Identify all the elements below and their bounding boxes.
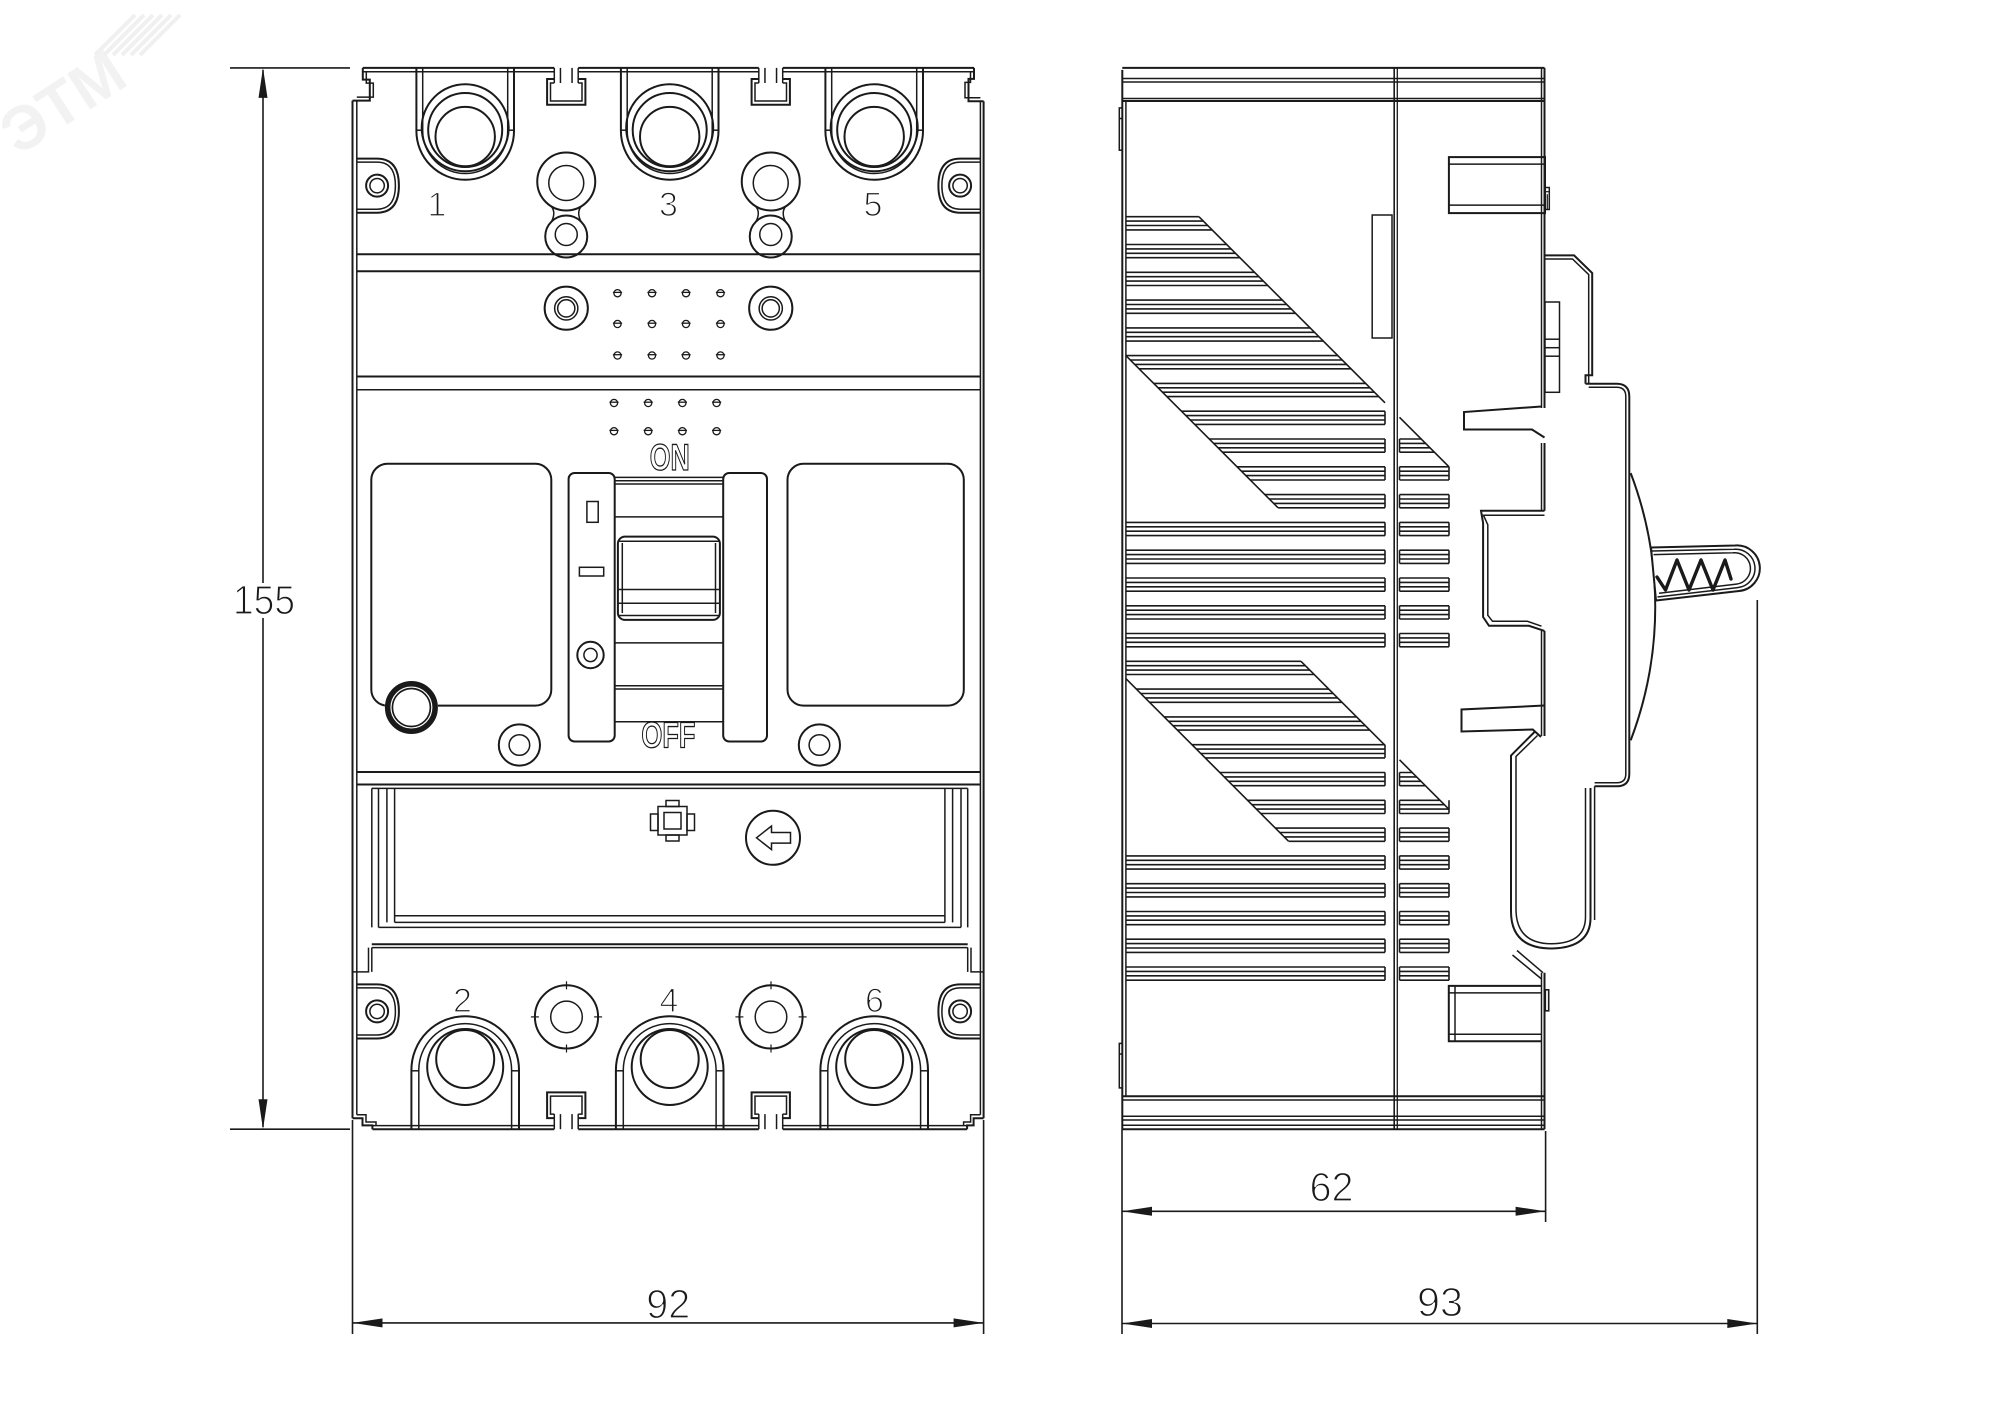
svg-text:2: 2 — [453, 982, 472, 1020]
svg-text:155: 155 — [233, 577, 295, 623]
svg-text:3: 3 — [659, 186, 678, 224]
svg-text:62: 62 — [1310, 1164, 1354, 1210]
svg-text:4: 4 — [660, 982, 679, 1020]
svg-text:ON: ON — [650, 437, 690, 478]
svg-text:92: 92 — [646, 1281, 690, 1327]
svg-text:6: 6 — [865, 982, 884, 1020]
svg-text:5: 5 — [864, 186, 883, 224]
svg-text:1: 1 — [428, 186, 447, 224]
svg-text:ЭТМ: ЭТМ — [0, 37, 138, 168]
svg-text:OFF: OFF — [641, 715, 695, 756]
svg-text:93: 93 — [1417, 1279, 1463, 1325]
